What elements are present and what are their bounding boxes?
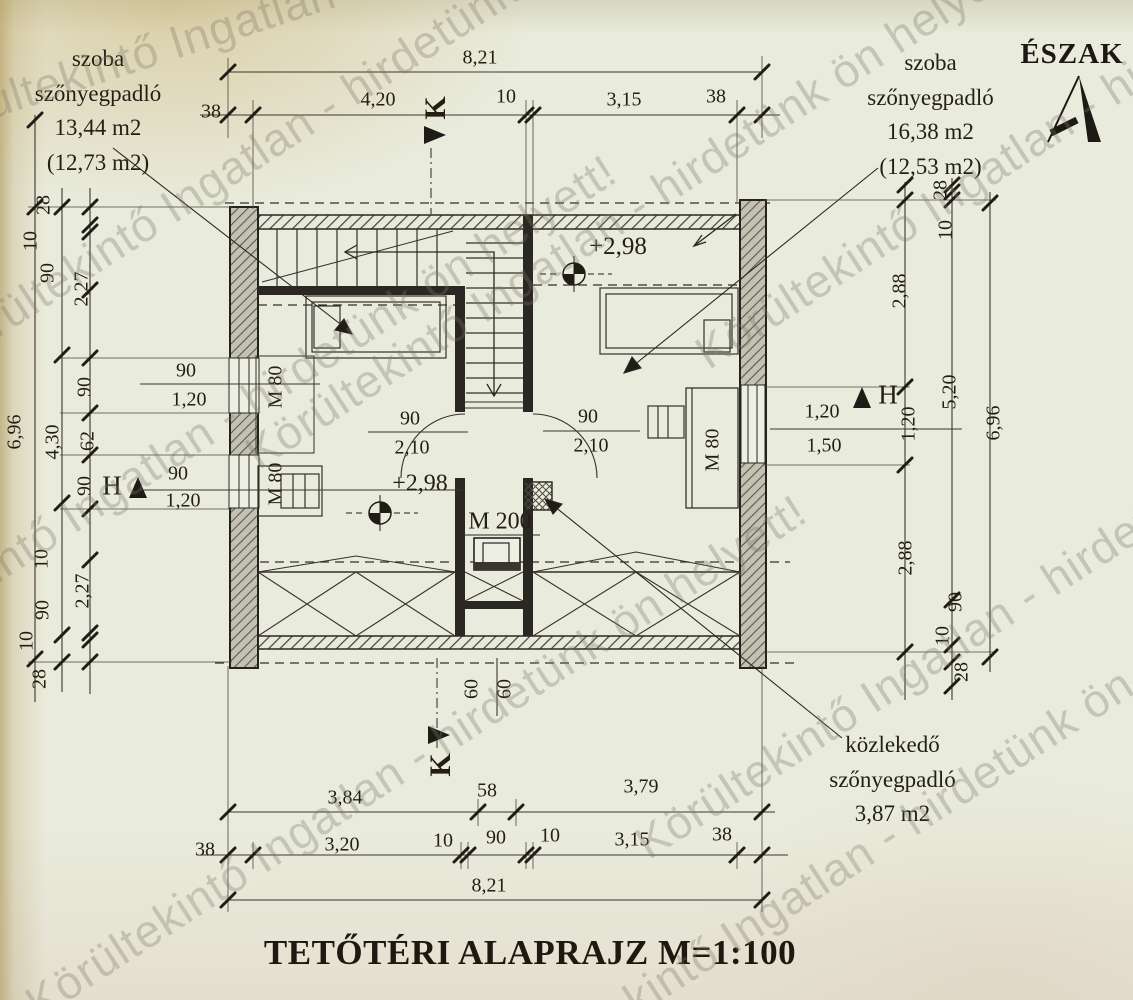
chair-right — [648, 406, 684, 438]
section-marker-h-right-arrow — [853, 387, 871, 408]
room-area: 16,38 m2 — [838, 115, 1023, 150]
north-label: ÉSZAK — [1012, 38, 1132, 71]
wardrobe-right — [686, 388, 738, 508]
floorplan-scan: 8,21384,20103,15382810902,2790624,306,96… — [0, 0, 1133, 1000]
interior-walls — [258, 215, 533, 636]
room-floor: szőnyegpadló — [790, 763, 995, 798]
roof-eaves-lines — [215, 203, 800, 663]
section-marker-k-top-arrow — [424, 126, 446, 144]
room-area-net: (12,53 m2) — [838, 150, 1023, 185]
room-floor: szőnyegpadló — [838, 81, 1023, 116]
room-label-left: szoba szőnyegpadló 13,44 m2 (12,73 m2) — [8, 42, 188, 180]
room-name: közlekedő — [790, 728, 995, 763]
room-label-right: szoba szőnyegpadló 16,38 m2 (12,53 m2) — [838, 46, 1023, 184]
page-title: TETŐTÉRI ALAPRAJZ M=1:100 — [225, 933, 835, 973]
section-marker-h-left-arrow — [129, 477, 147, 498]
section-marker-k-bottom-arrow — [428, 726, 450, 744]
staircase-walking-line — [345, 214, 736, 396]
staircase — [258, 229, 740, 572]
room-area-net: (12,73 m2) — [8, 146, 188, 181]
hatched-pillar — [524, 482, 552, 510]
room-area: 13,44 m2 — [8, 111, 188, 146]
room-floor: szőnyegpadló — [8, 77, 188, 112]
door-swings — [401, 414, 597, 478]
chimney — [462, 482, 552, 570]
north-arrow-icon — [1048, 76, 1101, 142]
room-name: szoba — [8, 42, 188, 77]
room-name: szoba — [838, 46, 1023, 81]
room-label-hallway: közlekedő szőnyegpadló 3,87 m2 — [790, 728, 995, 832]
room-area: 3,87 m2 — [790, 797, 995, 832]
window-niche-left — [256, 356, 314, 453]
